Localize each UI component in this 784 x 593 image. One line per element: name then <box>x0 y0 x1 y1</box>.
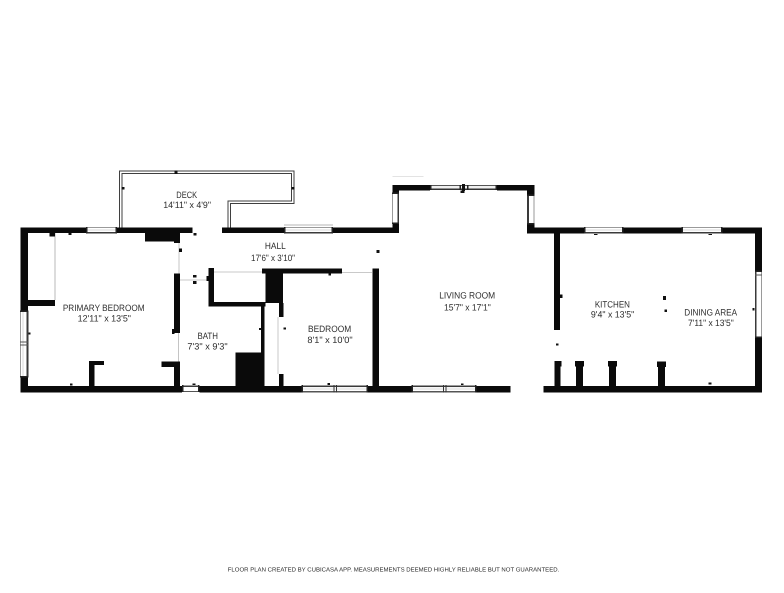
svg-text:LIVING ROOM: LIVING ROOM <box>439 291 495 301</box>
svg-text:14'11" x 4'9": 14'11" x 4'9" <box>163 200 211 210</box>
svg-text:BATH: BATH <box>197 331 218 341</box>
svg-text:BEDROOM: BEDROOM <box>308 324 351 334</box>
svg-text:8'1" x 10'0": 8'1" x 10'0" <box>307 335 352 345</box>
svg-text:FLOOR PLAN CREATED BY CUBICASA: FLOOR PLAN CREATED BY CUBICASA APP. MEAS… <box>228 567 560 574</box>
svg-text:7'3" x 9'3": 7'3" x 9'3" <box>187 341 227 351</box>
svg-text:KITCHEN: KITCHEN <box>595 299 630 309</box>
svg-text:HALL: HALL <box>265 241 286 251</box>
svg-text:PRIMARY BEDROOM: PRIMARY BEDROOM <box>63 303 145 313</box>
svg-text:DECK: DECK <box>176 190 198 200</box>
svg-text:9'4" x 13'5": 9'4" x 13'5" <box>591 309 634 319</box>
svg-text:17'6" x 3'10": 17'6" x 3'10" <box>251 253 295 263</box>
svg-text:7'11" x 13'5": 7'11" x 13'5" <box>688 318 734 328</box>
svg-text:12'11" x 13'5": 12'11" x 13'5" <box>78 313 131 323</box>
svg-text:15'7" x 17'1": 15'7" x 17'1" <box>444 303 491 313</box>
svg-text:DINING AREA: DINING AREA <box>684 308 738 318</box>
